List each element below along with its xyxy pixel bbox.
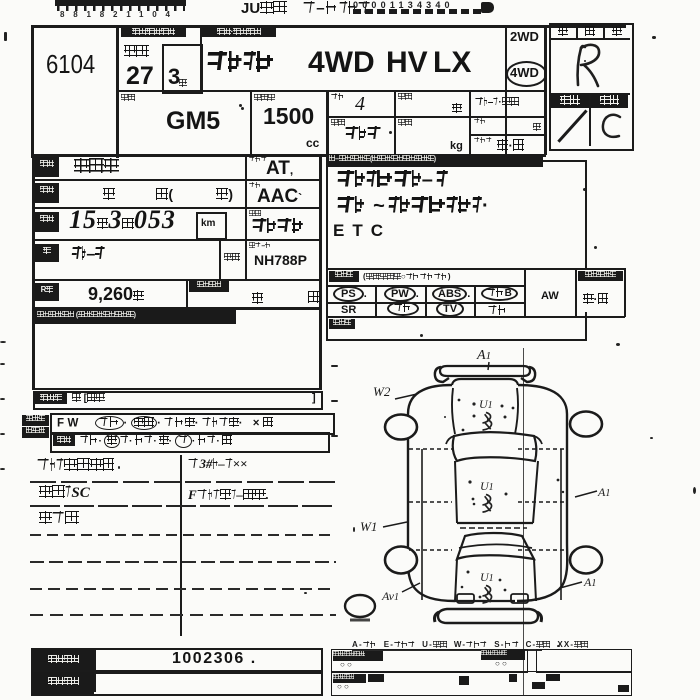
svg-text:U1: U1 (480, 570, 494, 584)
svg-text:U1: U1 (480, 479, 494, 493)
svg-text:W1: W1 (360, 519, 377, 534)
svg-text:A1: A1 (476, 348, 491, 363)
svg-text:A1: A1 (597, 485, 610, 499)
svg-text:U1: U1 (479, 397, 493, 411)
svg-text:A1: A1 (583, 575, 596, 589)
svg-text:W2: W2 (373, 384, 391, 399)
svg-text:Av1: Av1 (381, 589, 399, 603)
